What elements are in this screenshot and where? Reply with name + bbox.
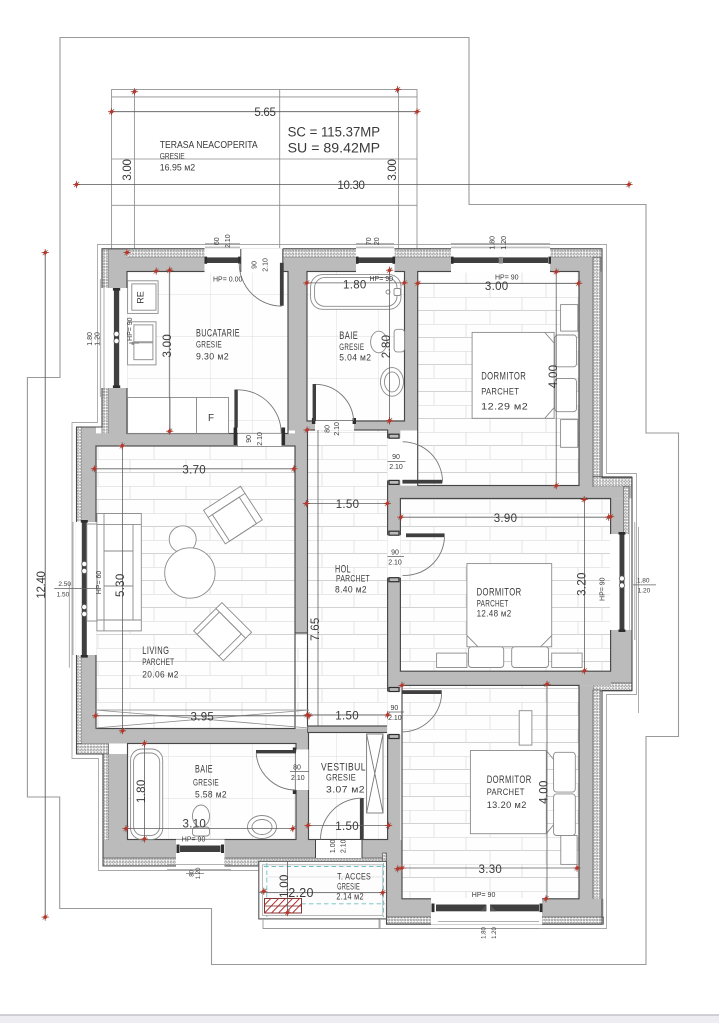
- svg-text:BUCATARIE: BUCATARIE: [196, 328, 240, 340]
- svg-text:90: 90: [391, 550, 399, 557]
- svg-text:SU = 89.42MP: SU = 89.42MP: [288, 141, 381, 156]
- svg-text:HP= 0.00: HP= 0.00: [213, 277, 242, 284]
- svg-text:1.50: 1.50: [335, 821, 358, 833]
- svg-text:3.20: 3.20: [576, 573, 588, 596]
- svg-text:90: 90: [391, 705, 399, 712]
- svg-text:PARCHET: PARCHET: [142, 657, 174, 668]
- svg-text:HP= 90: HP= 90: [495, 275, 519, 282]
- svg-text:HP= 90: HP= 90: [127, 317, 134, 341]
- svg-text:LIVING: LIVING: [142, 645, 169, 657]
- svg-text:HP= 60: HP= 60: [96, 571, 103, 595]
- svg-text:1.80: 1.80: [482, 927, 488, 939]
- svg-text:HP= 90: HP= 90: [182, 837, 206, 844]
- svg-text:90: 90: [246, 435, 253, 443]
- svg-text:PARCHET: PARCHET: [336, 574, 370, 585]
- svg-text:5.65: 5.65: [254, 107, 275, 119]
- svg-text:12.40: 12.40: [36, 571, 48, 598]
- svg-text:3.07 м2: 3.07 м2: [326, 785, 365, 796]
- svg-text:2.10: 2.10: [340, 839, 347, 853]
- svg-text:HP= 90: HP= 90: [370, 276, 394, 283]
- svg-text:1.80: 1.80: [490, 236, 497, 250]
- svg-text:1.20: 1.20: [501, 236, 508, 250]
- svg-text:13.20 м2: 13.20 м2: [487, 800, 527, 811]
- svg-text:GRESIE: GRESIE: [193, 778, 219, 789]
- svg-text:80: 80: [325, 425, 332, 433]
- svg-text:1.20: 1.20: [492, 927, 498, 939]
- svg-text:20: 20: [374, 237, 381, 245]
- svg-text:5.30: 5.30: [115, 574, 127, 597]
- svg-text:3.70: 3.70: [182, 464, 205, 476]
- svg-text:2.50: 2.50: [58, 581, 71, 588]
- svg-text:F: F: [208, 413, 214, 424]
- svg-text:2.80: 2.80: [381, 335, 393, 358]
- svg-text:9.30 м2: 9.30 м2: [196, 352, 229, 363]
- svg-text:12.48 м2: 12.48 м2: [477, 609, 512, 620]
- svg-text:70: 70: [366, 237, 373, 245]
- svg-text:2.10: 2.10: [225, 234, 232, 248]
- svg-text:3.00: 3.00: [387, 159, 399, 180]
- svg-text:3.00: 3.00: [122, 159, 134, 180]
- svg-text:1.80: 1.80: [87, 332, 94, 346]
- svg-text:PARCHET: PARCHET: [487, 787, 525, 798]
- svg-text:3.90: 3.90: [494, 513, 517, 525]
- svg-text:5.58 м2: 5.58 м2: [195, 790, 227, 801]
- svg-text:1.50: 1.50: [336, 499, 359, 511]
- svg-text:GRESIE: GRESIE: [160, 152, 185, 161]
- svg-text:2.20: 2.20: [288, 886, 313, 900]
- svg-text:1.50: 1.50: [335, 710, 358, 722]
- svg-text:3.95: 3.95: [191, 712, 214, 724]
- svg-text:BAIE: BAIE: [195, 764, 213, 776]
- svg-text:2.14 м2: 2.14 м2: [336, 892, 364, 903]
- svg-text:1.50: 1.50: [57, 591, 70, 598]
- svg-text:TERASA NEACOPERITA: TERASA NEACOPERITA: [160, 140, 258, 151]
- svg-text:1.80: 1.80: [637, 577, 650, 584]
- svg-text:RE: RE: [136, 291, 146, 304]
- svg-text:2.10: 2.10: [291, 775, 305, 782]
- svg-text:90: 90: [252, 261, 259, 269]
- svg-text:2.10: 2.10: [334, 422, 341, 436]
- svg-text:1.20: 1.20: [638, 587, 651, 594]
- svg-text:3.00: 3.00: [162, 335, 174, 358]
- svg-text:5.04 м2: 5.04 м2: [339, 353, 371, 364]
- svg-text:3.00: 3.00: [485, 281, 508, 293]
- svg-text:2.10: 2.10: [388, 560, 402, 567]
- svg-text:DORMITOR: DORMITOR: [481, 371, 526, 383]
- svg-text:90: 90: [392, 454, 400, 461]
- svg-text:16.95 м2: 16.95 м2: [160, 163, 196, 173]
- svg-text:1.80: 1.80: [343, 279, 366, 291]
- svg-text:PARCHET: PARCHET: [481, 387, 519, 398]
- svg-text:3.10: 3.10: [183, 818, 206, 830]
- svg-text:80: 80: [189, 869, 195, 876]
- svg-text:1.20: 1.20: [196, 867, 202, 879]
- svg-text:2.10: 2.10: [257, 432, 264, 446]
- svg-text:1.00: 1.00: [330, 839, 337, 853]
- svg-text:1.00: 1.00: [279, 875, 291, 898]
- svg-text:DORMITOR: DORMITOR: [477, 587, 522, 599]
- svg-text:8.40 м2: 8.40 м2: [335, 585, 367, 596]
- svg-text:GRESIE: GRESIE: [326, 773, 356, 784]
- svg-text:2.10: 2.10: [389, 464, 403, 471]
- svg-text:4.00: 4.00: [548, 365, 560, 388]
- svg-text:1.80: 1.80: [136, 780, 148, 803]
- svg-text:10.30: 10.30: [337, 180, 364, 192]
- svg-text:SC = 115.37MP: SC = 115.37MP: [288, 125, 381, 140]
- svg-text:12.29 м2: 12.29 м2: [481, 402, 528, 413]
- svg-text:3.30: 3.30: [479, 864, 502, 876]
- svg-text:HP= 90: HP= 90: [472, 892, 496, 899]
- svg-text:GRESIE: GRESIE: [339, 342, 364, 353]
- svg-text:BAIE: BAIE: [339, 330, 358, 342]
- svg-text:DORMITOR: DORMITOR: [487, 774, 532, 786]
- svg-text:2.10: 2.10: [262, 258, 269, 272]
- svg-text:80: 80: [293, 764, 301, 771]
- svg-text:1.20: 1.20: [95, 332, 102, 346]
- svg-text:7.65: 7.65: [310, 618, 322, 641]
- svg-text:GRESIE: GRESIE: [196, 340, 222, 351]
- svg-text:60: 60: [214, 237, 221, 245]
- svg-text:2.10: 2.10: [388, 715, 402, 722]
- svg-text:20.06 м2: 20.06 м2: [142, 670, 179, 681]
- svg-text:4.00: 4.00: [539, 781, 551, 804]
- svg-text:HP= 90: HP= 90: [600, 577, 607, 601]
